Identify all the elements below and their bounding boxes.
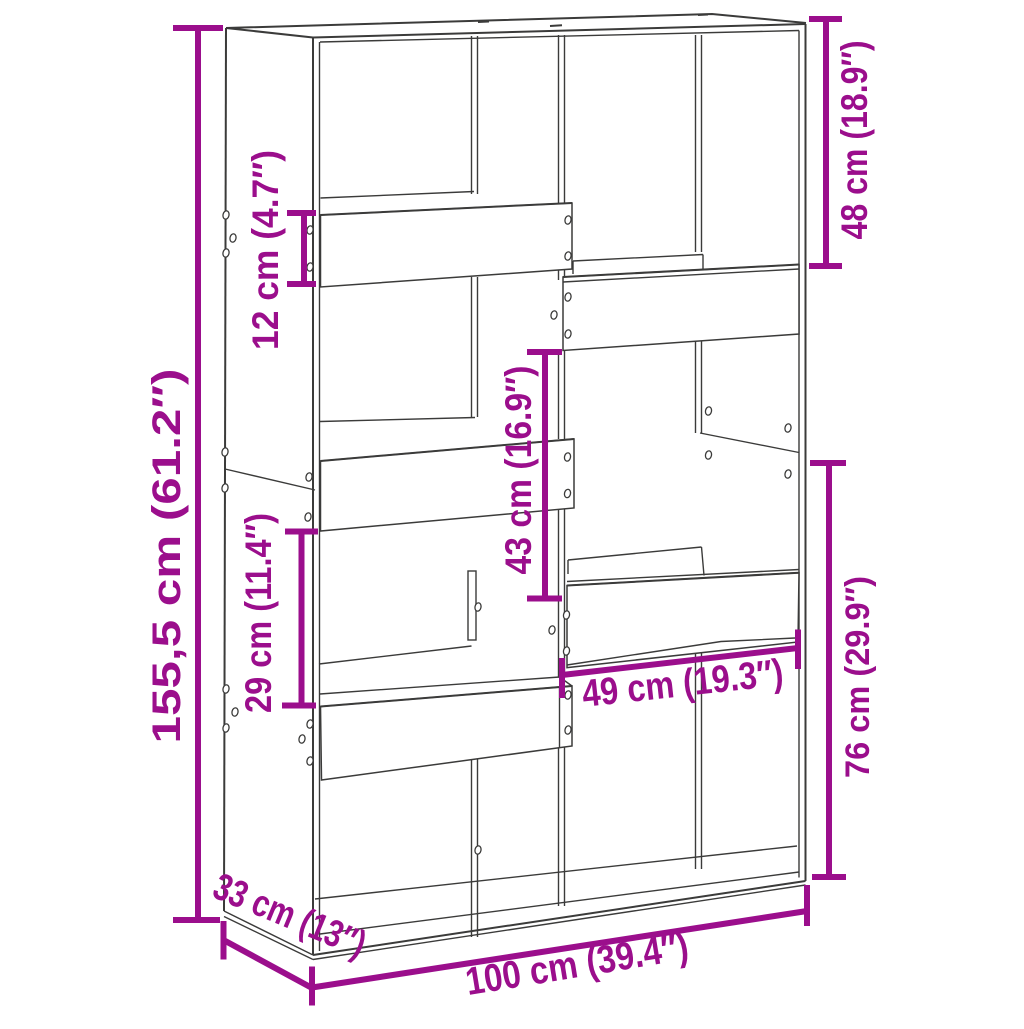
svg-text:48 cm (18.9″): 48 cm (18.9″) (834, 41, 875, 240)
svg-text:12 cm (4.7″): 12 cm (4.7″) (245, 150, 286, 350)
svg-text:155,5 cm (61.2″): 155,5 cm (61.2″) (145, 369, 189, 744)
svg-text:43 cm (16.9″): 43 cm (16.9″) (498, 366, 539, 575)
svg-text:76 cm (29.9″): 76 cm (29.9″) (839, 576, 877, 778)
svg-text:29 cm (11.4″): 29 cm (11.4″) (238, 513, 279, 713)
